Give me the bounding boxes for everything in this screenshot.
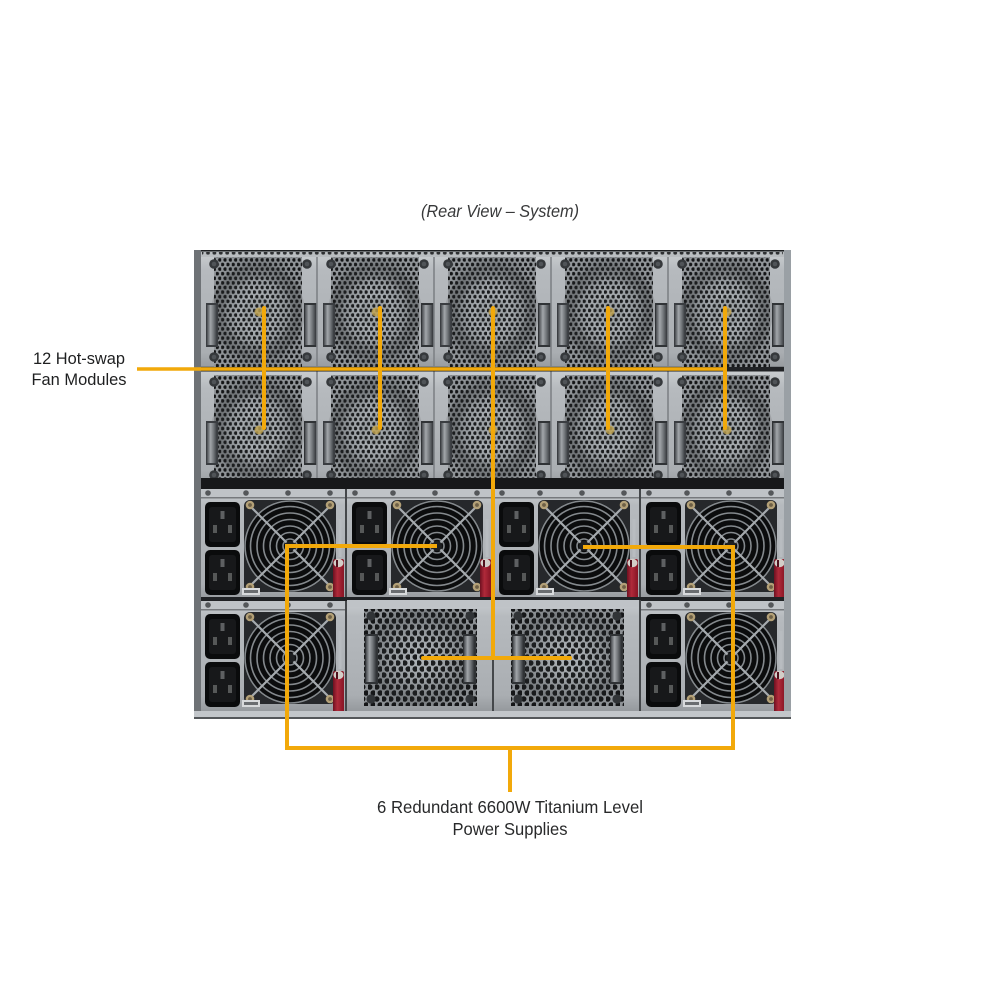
svg-text:6 Redundant 6600W Titanium Lev: 6 Redundant 6600W Titanium Level	[377, 797, 643, 817]
svg-text:Power Supplies: Power Supplies	[453, 819, 568, 839]
svg-text:Fan Modules: Fan Modules	[32, 370, 127, 389]
svg-text:12 Hot-swap: 12 Hot-swap	[33, 349, 125, 368]
svg-text:(Rear View – System): (Rear View – System)	[421, 201, 579, 221]
